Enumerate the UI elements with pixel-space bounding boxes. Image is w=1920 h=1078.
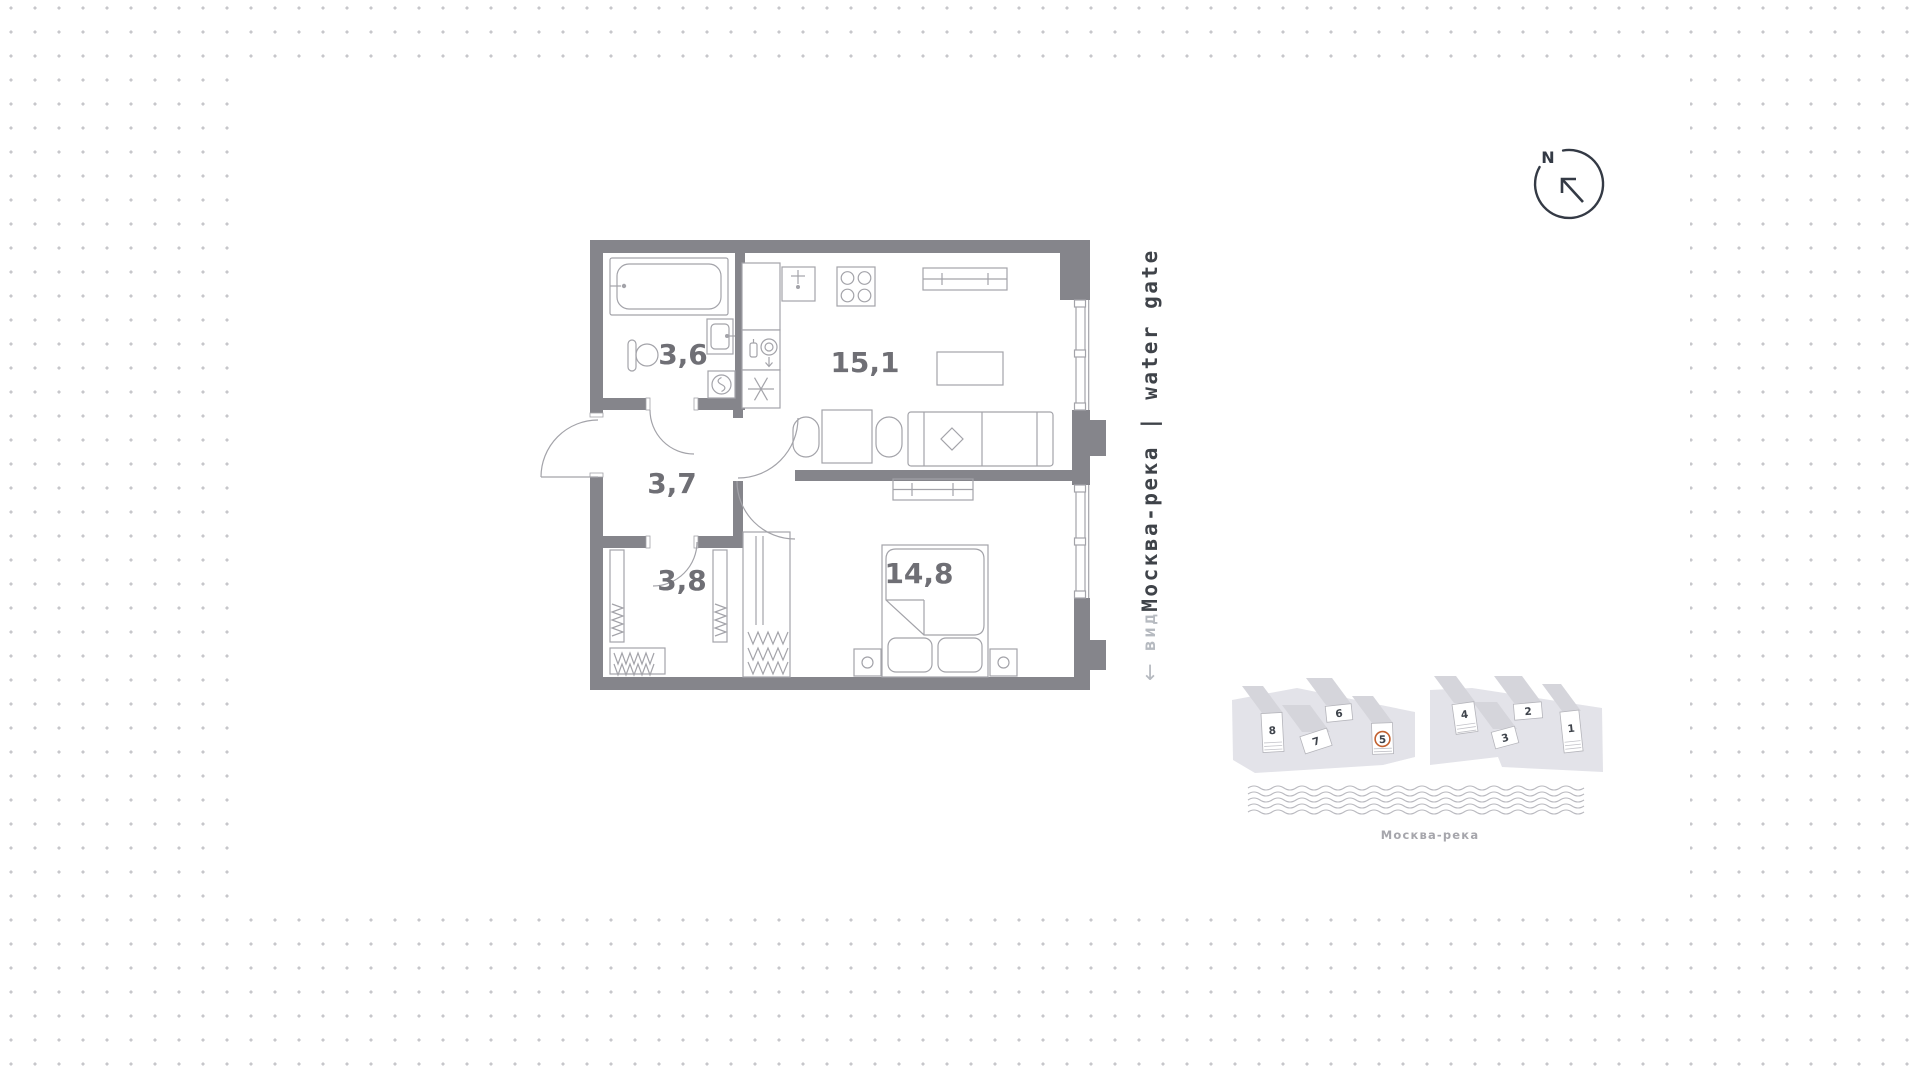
room-area-hallway: 3,7	[647, 467, 697, 500]
site-building-8[interactable]: 8	[1261, 712, 1284, 752]
kitchen-sink	[782, 267, 815, 301]
room-area-kitchen-living: 15,1	[830, 346, 899, 379]
window-living-room	[1075, 300, 1089, 410]
bedroom-wardrobe	[743, 532, 790, 677]
radiator-bedroom	[893, 479, 973, 500]
room-area-bedroom: 14,8	[884, 557, 953, 590]
nightstand-left	[854, 649, 881, 676]
svg-text:2: 2	[1524, 706, 1532, 719]
site-building-6[interactable]: 6	[1325, 704, 1353, 723]
site-building-2[interactable]: 2	[1513, 702, 1542, 720]
dishwasher-icon	[742, 330, 780, 370]
toilet	[628, 340, 658, 371]
stove	[837, 267, 875, 306]
north-arrow-icon	[1562, 179, 1583, 202]
washing-machine	[708, 371, 735, 398]
fridge-icon	[742, 370, 780, 408]
room-area-wardrobe: 3,8	[657, 564, 707, 597]
radiator-living	[923, 268, 1007, 290]
svg-text:8: 8	[1268, 725, 1276, 737]
river-waves	[1248, 786, 1584, 814]
kitchen-counter	[742, 263, 780, 330]
site-building-1[interactable]: 1	[1560, 710, 1583, 753]
compass-north-label: N	[1541, 148, 1554, 167]
svg-text:5: 5	[1379, 734, 1387, 746]
dining-table	[793, 410, 902, 463]
window-bedroom	[1075, 485, 1089, 598]
compass: N	[1524, 139, 1614, 229]
site-building-4[interactable]: 4	[1452, 702, 1478, 735]
tv-stand	[937, 352, 1003, 385]
site-building-5-current[interactable]: 5	[1371, 723, 1393, 755]
floor-plan: 3,6 3,7 3,8 15,1 14,8	[530, 235, 1115, 700]
walls	[590, 240, 1106, 690]
svg-text:6: 6	[1335, 708, 1344, 721]
svg-text:1: 1	[1567, 723, 1576, 736]
sofa	[908, 412, 1053, 466]
bathroom-sink	[707, 319, 735, 354]
site-plan: 8 7 6 5 4 3 2 1	[1000, 670, 1640, 860]
view-word-label: вид	[1140, 611, 1160, 651]
bathtub	[610, 258, 728, 315]
river-label: Москва-река	[1381, 828, 1480, 842]
room-area-bathroom: 3,6	[658, 338, 708, 371]
river-view-label: Москва-река | water gate	[1138, 248, 1162, 611]
